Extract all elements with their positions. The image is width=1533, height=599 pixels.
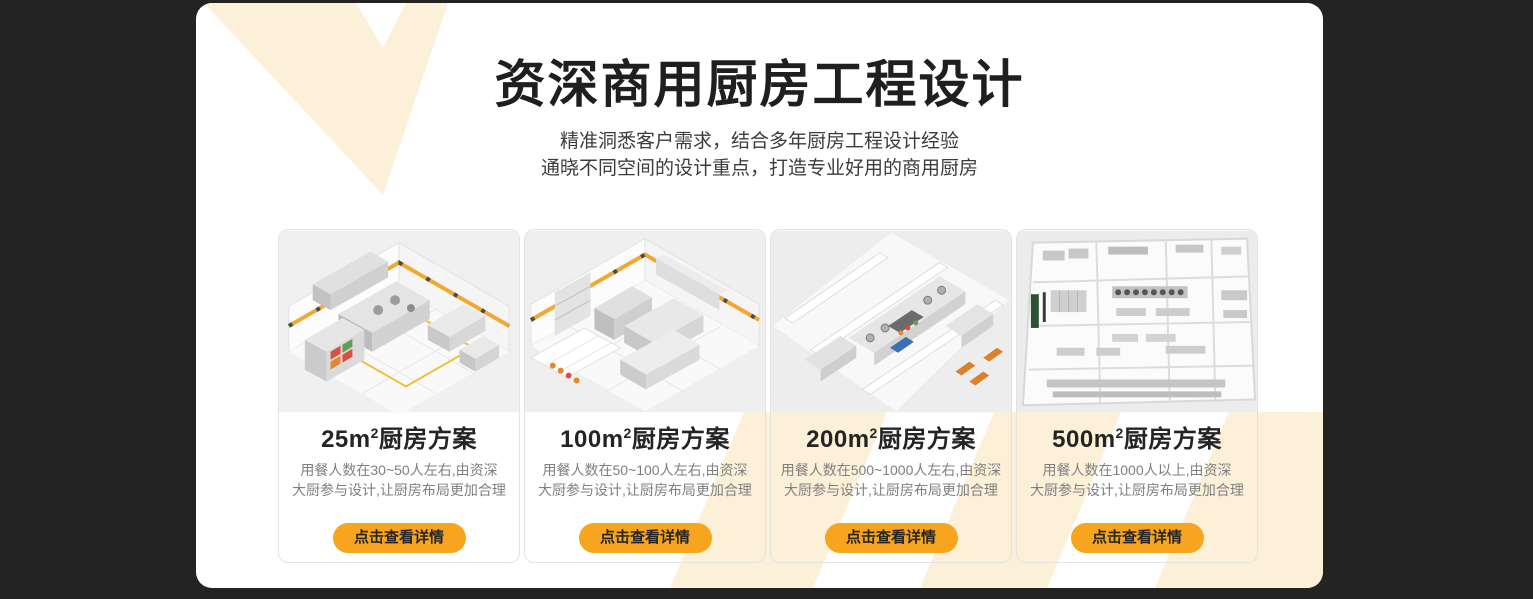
page-subtitle-line1: 精准洞悉客户需求，结合多年厨房工程设计经验 — [196, 128, 1323, 155]
card-area-value: 500m — [1052, 426, 1115, 453]
card-area-superscript: 2 — [870, 425, 878, 441]
kitchen-render-25m2 — [279, 230, 519, 413]
view-details-button[interactable]: 点击查看详情 — [1071, 523, 1204, 553]
view-details-button[interactable]: 点击查看详情 — [333, 523, 466, 553]
kitchen-render-100m2-image — [525, 230, 765, 413]
card-description-line1: 用餐人数在1000人以上,由资深 — [1042, 462, 1231, 478]
view-details-button[interactable]: 点击查看详情 — [579, 523, 712, 553]
kitchen-plan-card-100m2: 100m2厨房方案 用餐人数在50~100人左右,由资深大厨参与设计,让厨房布局… — [524, 229, 766, 563]
page-subtitle-line2: 通晓不同空间的设计重点，打造专业好用的商用厨房 — [196, 155, 1323, 182]
card-area-value: 100m — [560, 426, 623, 453]
kitchen-plan-card-25m2: 25m2厨房方案 用餐人数在30~50人左右,由资深大厨参与设计,让厨房布局更加… — [278, 229, 520, 563]
kitchen-render-200m2 — [771, 230, 1011, 413]
card-description-line1: 用餐人数在500~1000人左右,由资深 — [781, 462, 1002, 478]
card-description-line2: 大厨参与设计,让厨房布局更加合理 — [1030, 482, 1244, 498]
kitchen-render-100m2 — [525, 230, 765, 413]
plan-cards-row: 25m2厨房方案 用餐人数在30~50人左右,由资深大厨参与设计,让厨房布局更加… — [278, 229, 1258, 563]
card-area-value: 25m — [321, 426, 371, 453]
content-panel: 资深商用厨房工程设计 精准洞悉客户需求，结合多年厨房工程设计经验 通晓不同空间的… — [196, 3, 1323, 588]
kitchen-render-200m2-image — [771, 230, 1011, 413]
section-header: 资深商用厨房工程设计 精准洞悉客户需求，结合多年厨房工程设计经验 通晓不同空间的… — [196, 3, 1323, 182]
card-description-line1: 用餐人数在30~50人左右,由资深 — [300, 462, 497, 478]
kitchen-plan-card-500m2: 500m2厨房方案 用餐人数在1000人以上,由资深大厨参与设计,让厨房布局更加… — [1016, 229, 1258, 563]
card-description-line2: 大厨参与设计,让厨房布局更加合理 — [538, 482, 752, 498]
card-description: 用餐人数在30~50人左右,由资深大厨参与设计,让厨房布局更加合理 — [292, 460, 506, 500]
kitchen-render-500m2-image — [1017, 230, 1257, 413]
card-title-suffix: 厨房方案 — [1124, 426, 1222, 453]
card-description-line2: 大厨参与设计,让厨房布局更加合理 — [784, 482, 998, 498]
card-area-value: 200m — [806, 426, 869, 453]
card-title-suffix: 厨房方案 — [379, 426, 477, 453]
card-title-suffix: 厨房方案 — [632, 426, 730, 453]
card-description-line2: 大厨参与设计,让厨房布局更加合理 — [292, 482, 506, 498]
kitchen-render-25m2-image — [279, 230, 519, 413]
card-title: 100m2厨房方案 — [560, 426, 730, 453]
card-title-suffix: 厨房方案 — [878, 426, 976, 453]
card-description: 用餐人数在500~1000人左右,由资深大厨参与设计,让厨房布局更加合理 — [781, 460, 1002, 500]
card-area-superscript: 2 — [1116, 425, 1124, 441]
card-description-line1: 用餐人数在50~100人左右,由资深 — [542, 462, 747, 478]
card-description: 用餐人数在50~100人左右,由资深大厨参与设计,让厨房布局更加合理 — [538, 460, 752, 500]
card-title: 25m2厨房方案 — [321, 426, 477, 453]
card-area-superscript: 2 — [624, 425, 632, 441]
card-description: 用餐人数在1000人以上,由资深大厨参与设计,让厨房布局更加合理 — [1030, 460, 1244, 500]
kitchen-plan-card-200m2: 200m2厨房方案 用餐人数在500~1000人左右,由资深大厨参与设计,让厨房… — [770, 229, 1012, 563]
card-title: 500m2厨房方案 — [1052, 426, 1222, 453]
card-area-superscript: 2 — [371, 425, 379, 441]
kitchen-render-500m2 — [1017, 230, 1257, 413]
card-title: 200m2厨房方案 — [806, 426, 976, 453]
view-details-button[interactable]: 点击查看详情 — [825, 523, 958, 553]
page-title: 资深商用厨房工程设计 — [196, 55, 1323, 114]
